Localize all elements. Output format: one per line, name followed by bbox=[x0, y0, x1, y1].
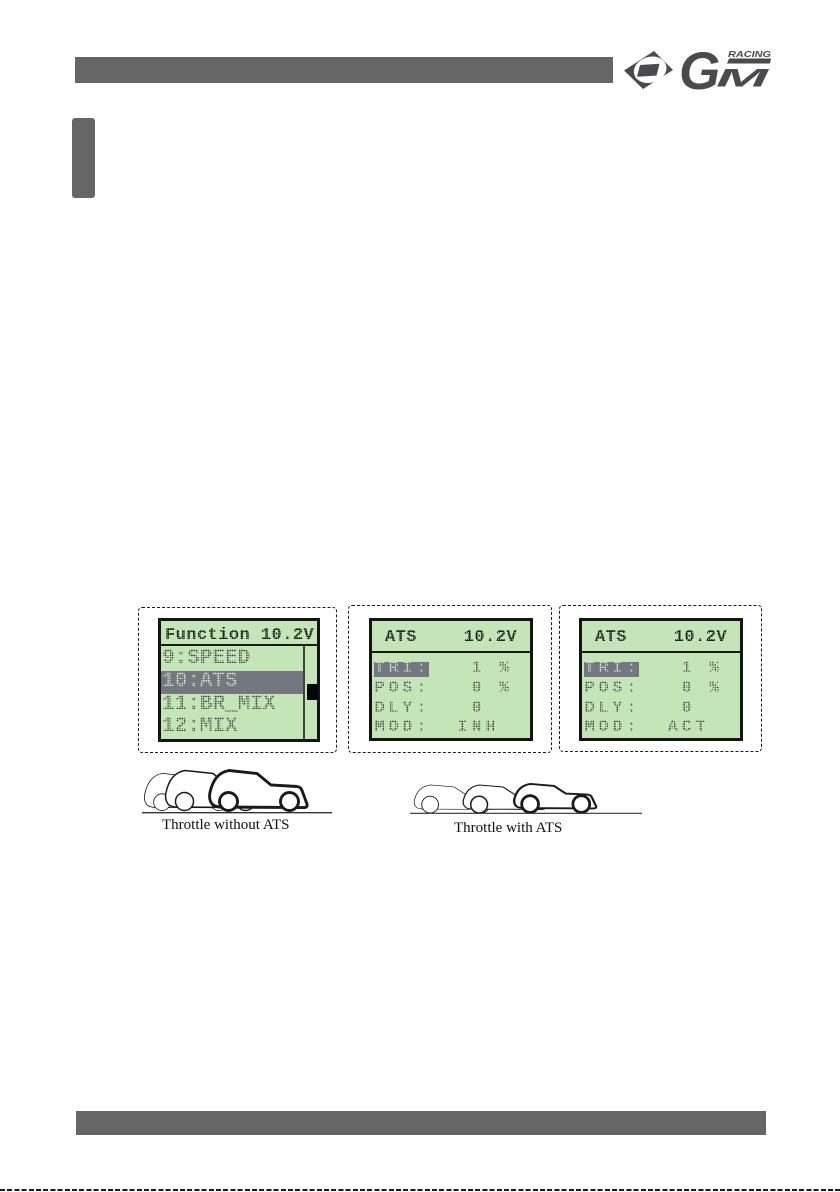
svg-text:M: M bbox=[716, 65, 771, 93]
svg-text:RACING: RACING bbox=[728, 49, 771, 59]
svg-text:G: G bbox=[679, 42, 720, 98]
